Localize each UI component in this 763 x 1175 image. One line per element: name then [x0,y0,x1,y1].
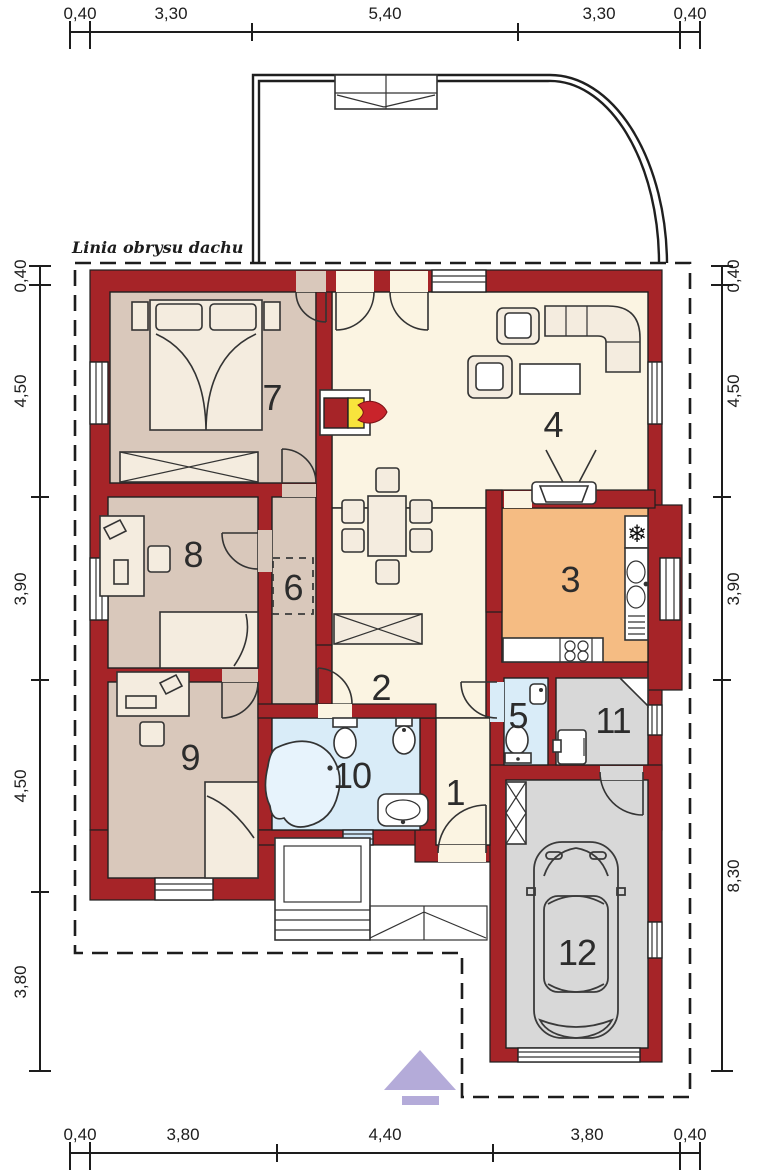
dim-label: 0,40 [724,259,743,292]
room-number: 10 [333,755,371,796]
fridge: ❄ [625,516,648,548]
dim-label: 4,50 [11,374,30,407]
room-12-floor [506,780,648,1048]
dimension-line-right: 0,40 4,50 3,90 8,30 [711,259,743,1071]
dim-label: 5,40 [368,4,401,23]
dim-label: 0,40 [673,1125,706,1144]
dim-label: 4,50 [724,374,743,407]
terrace-skylight [335,75,437,109]
single-bed [205,782,258,878]
dim-label: 0,40 [673,4,706,23]
dim-label: 3,80 [570,1125,603,1144]
room-number: 9 [180,737,199,778]
dim-label: 3,80 [11,965,30,998]
armchair [497,308,539,344]
window-garage-right [648,922,662,958]
dim-label: 3,90 [11,572,30,605]
corner-bathtub [265,741,339,827]
bath-sink [378,794,428,826]
window-utility-right [648,705,662,735]
dimension-line-top: 0,40 3,30 5,40 3,30 0,40 [63,4,706,49]
dimension-line-bottom: 0,40 3,80 4,40 3,80 0,40 [63,1125,706,1170]
room-number: 8 [183,534,202,575]
stove-counter [503,638,603,662]
entrance-arrow-icon [384,1050,456,1105]
dim-label: 3,90 [724,572,743,605]
dim-label: 0,40 [63,4,96,23]
bidet [393,718,415,754]
double-bed [132,300,280,430]
window-room7-left [90,362,108,424]
floor-plan-drawing: 0,40 3,30 5,40 3,30 0,40 0,40 3,80 4,40 … [0,0,763,1175]
dim-label: 3,80 [166,1125,199,1144]
snowflake-icon: ❄ [627,521,647,548]
room-number: 5 [508,695,527,736]
room-number: 2 [371,667,390,708]
room-number: 1 [445,772,464,813]
boiler [553,730,586,764]
dim-label: 3,30 [582,4,615,23]
toilet [333,718,357,758]
room-number: 11 [595,700,630,741]
dim-label: 8,30 [724,859,743,892]
window-living-right [648,362,662,424]
room-number: 6 [283,567,302,608]
window-kitchen-right [660,558,680,620]
roof-outline-label: Linia obrysu dachu [71,238,243,257]
room-number: 12 [558,932,596,973]
room-number: 7 [262,377,281,418]
room-number: 4 [543,404,562,445]
window-room9-bottom [155,878,213,900]
wardrobe [120,452,258,482]
hall-wardrobe [334,614,422,644]
terrace-outline [253,75,667,263]
dim-label: 3,30 [154,4,187,23]
coffee-table [520,364,580,394]
floor-plan-page: 0,40 3,30 5,40 3,30 0,40 0,40 3,80 4,40 … [0,0,763,1175]
dim-label: 0,40 [63,1125,96,1144]
dim-label: 4,50 [11,769,30,802]
single-bed [160,612,258,668]
room-1: 1 [445,772,464,813]
dimension-line-left: 0,40 4,50 3,90 4,50 3,80 [11,259,51,1071]
tall-cabinet [506,782,526,844]
dim-label: 0,40 [11,259,30,292]
garage-door [518,1048,640,1062]
window-living-top [432,270,486,292]
dim-label: 4,40 [368,1125,401,1144]
wc-sink [530,684,546,704]
kitchen-sink-counter [625,548,648,640]
armchair [468,356,512,398]
room-number: 3 [560,559,579,600]
